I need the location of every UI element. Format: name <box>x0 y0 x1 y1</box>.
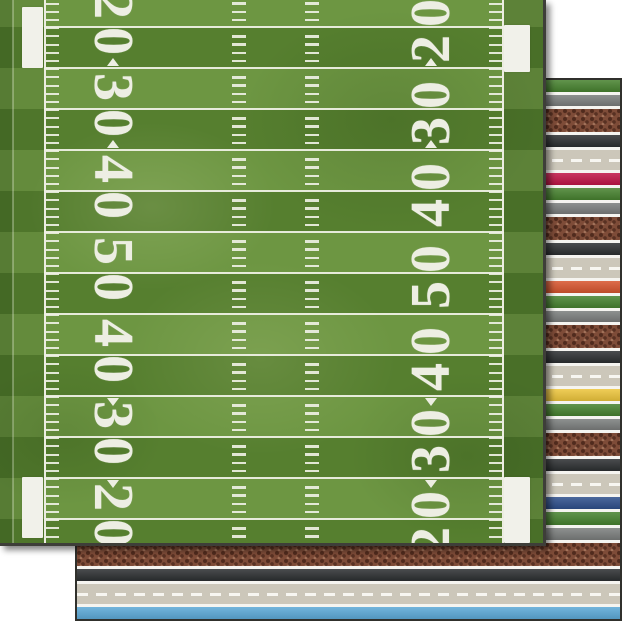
hash-mark <box>305 101 319 104</box>
sideline-tick-right <box>489 27 502 29</box>
sideline-tick-left <box>46 93 59 95</box>
hash-mark <box>232 117 246 120</box>
sideline-tick-left <box>46 339 59 341</box>
goal-marker-top-left <box>22 7 43 68</box>
sideline-tick-left <box>46 404 59 406</box>
sideline-tick-right <box>489 437 502 439</box>
sideline-tick-left <box>46 454 59 456</box>
hash-mark <box>305 2 319 5</box>
sideline-tick-left <box>46 527 59 529</box>
yard-line <box>44 149 504 152</box>
sideline-tick-left <box>46 76 59 78</box>
goal-marker-bottom-right <box>504 477 530 543</box>
hash-mark <box>232 470 246 473</box>
hash-mark <box>232 404 246 407</box>
hash-mark <box>305 257 319 260</box>
hash-mark <box>305 248 319 251</box>
yard-line <box>44 477 504 480</box>
sideline-tick-left <box>46 208 59 210</box>
hash-mark <box>232 339 246 342</box>
hash-mark <box>232 412 246 415</box>
sideline-tick-right <box>489 158 502 160</box>
hash-mark <box>305 281 319 284</box>
sideline-tick-right <box>489 44 502 46</box>
sideline-tick-right <box>489 511 502 513</box>
hash-mark <box>232 306 246 309</box>
sideline-tick-left <box>46 68 59 70</box>
sideline-tick-left <box>46 429 59 431</box>
hash-mark <box>232 462 246 465</box>
sideline-tick-left <box>46 240 59 242</box>
hash-mark <box>305 265 319 268</box>
hash-mark <box>305 183 319 186</box>
sideline-tick-left <box>46 372 59 374</box>
hash-mark <box>232 142 246 145</box>
yard-arrow-up-icon <box>425 140 437 148</box>
hash-mark <box>232 445 246 448</box>
sideline-tick-left <box>46 273 59 275</box>
hash-mark <box>232 429 246 432</box>
sideline-tick-left <box>46 142 59 144</box>
hash-mark <box>232 322 246 325</box>
sideline-tick-right <box>489 199 502 201</box>
yard-line <box>44 231 504 234</box>
sideline-tick-left <box>46 462 59 464</box>
hash-mark <box>232 76 246 79</box>
hash-mark <box>232 35 246 38</box>
hash-mark <box>232 289 246 292</box>
sideline-tick-left <box>46 126 59 128</box>
hash-mark <box>305 117 319 120</box>
sideline-tick-left <box>46 3 59 5</box>
sideline-tick-left <box>46 306 59 308</box>
stripe-brown <box>77 543 620 566</box>
hash-mark <box>232 2 246 5</box>
hash-mark <box>232 134 246 137</box>
hash-mark <box>305 445 319 448</box>
sideline-tick-left <box>46 536 59 538</box>
hash-mark <box>232 503 246 506</box>
hash-mark <box>305 503 319 506</box>
hash-mark <box>305 125 319 128</box>
hash-mark <box>305 207 319 210</box>
hash-mark <box>305 511 319 514</box>
sideline-tick-right <box>489 470 502 472</box>
sideline-tick-left <box>46 290 59 292</box>
sideline-tick-left <box>46 355 59 357</box>
sideline-tick-right <box>489 429 502 431</box>
yard-number-right: 40 <box>403 155 459 227</box>
hash-mark <box>305 175 319 178</box>
hash-mark <box>305 388 319 391</box>
hash-mark <box>305 404 319 407</box>
sideline-tick-left <box>46 347 59 349</box>
sideline-tick-right <box>489 183 502 185</box>
hash-mark <box>232 535 246 538</box>
hash-mark <box>305 166 319 169</box>
sideline-tick-left <box>46 44 59 46</box>
sideline-tick-right <box>489 495 502 497</box>
hash-mark <box>305 289 319 292</box>
hash-mark <box>232 421 246 424</box>
hash-mark <box>232 224 246 227</box>
yard-number-right: 30 <box>403 73 459 145</box>
sideline-tick-left <box>46 101 59 103</box>
sideline-tick-right <box>489 265 502 267</box>
hash-mark <box>305 339 319 342</box>
yard-number-left: 20 <box>85 0 141 63</box>
hash-mark <box>305 535 319 538</box>
hash-mark <box>305 322 319 325</box>
hash-mark <box>232 93 246 96</box>
sideline-tick-right <box>489 134 502 136</box>
sideline-tick-left <box>46 60 59 62</box>
sideline-tick-right <box>489 462 502 464</box>
sideline-tick-right <box>489 355 502 357</box>
hash-mark <box>232 216 246 219</box>
sideline-tick-left <box>46 281 59 283</box>
yard-line <box>44 67 504 70</box>
hash-mark <box>232 11 246 14</box>
hash-mark <box>305 470 319 473</box>
sideline-tick-left <box>46 388 59 390</box>
hash-mark <box>305 330 319 333</box>
sideline-tick-left <box>46 19 59 21</box>
hash-mark <box>305 216 319 219</box>
sideline-tick-left <box>46 265 59 267</box>
sideline-tick-right <box>489 191 502 193</box>
goal-marker-top-right <box>504 25 530 72</box>
yard-arrow-up-icon <box>107 140 119 148</box>
sideline-tick-left <box>46 380 59 382</box>
sideline-tick-left <box>46 421 59 423</box>
sideline-tick-right <box>489 35 502 37</box>
sideline-tick-left <box>46 486 59 488</box>
hash-mark <box>305 306 319 309</box>
sideline-tick-right <box>489 331 502 333</box>
goal-marker-bottom-left <box>22 477 43 538</box>
yard-line <box>44 313 504 316</box>
sideline-tick-left <box>46 413 59 415</box>
hash-mark <box>305 11 319 14</box>
stripe-lightblue <box>77 607 620 620</box>
hash-mark <box>232 281 246 284</box>
sideline-tick-right <box>489 281 502 283</box>
sideline-tick-right <box>489 314 502 316</box>
hash-mark <box>232 166 246 169</box>
hash-mark <box>305 60 319 63</box>
hash-mark <box>305 421 319 424</box>
sideline-tick-right <box>489 527 502 529</box>
stripe-tan <box>77 584 620 604</box>
sideline-tick-right <box>489 519 502 521</box>
hash-mark <box>305 494 319 497</box>
hash-mark <box>232 240 246 243</box>
hash-mark <box>305 363 319 366</box>
sideline-tick-right <box>489 60 502 62</box>
sideline-tick-right <box>489 19 502 21</box>
sideline-tick-left <box>46 216 59 218</box>
sideline-tick-right <box>489 396 502 398</box>
sideline-tick-left <box>46 117 59 119</box>
sideline-tick-right <box>489 208 502 210</box>
sideline-tick-right <box>489 298 502 300</box>
sideline-tick-right <box>489 76 502 78</box>
hash-mark <box>305 453 319 456</box>
sideline-tick-right <box>489 322 502 324</box>
sideline-tick-left <box>46 27 59 29</box>
sideline-tick-right <box>489 421 502 423</box>
hash-mark <box>305 158 319 161</box>
sideline-tick-left <box>46 495 59 497</box>
sideline-tick-right <box>489 126 502 128</box>
sideline-tick-left <box>46 445 59 447</box>
sideline-tick-right <box>489 306 502 308</box>
sideline-tick-right <box>489 68 502 70</box>
hash-mark <box>305 527 319 530</box>
hash-mark <box>232 199 246 202</box>
hash-mark <box>305 134 319 137</box>
yard-number-right: 40 <box>403 319 459 391</box>
hash-mark <box>232 52 246 55</box>
hash-mark <box>305 93 319 96</box>
sideline-tick-left <box>46 396 59 398</box>
hash-mark <box>232 371 246 374</box>
yard-number-left: 50 <box>85 237 141 309</box>
yard-number-left: 30 <box>85 73 141 145</box>
sideline-tick-right <box>489 290 502 292</box>
sideline-tick-right <box>489 93 502 95</box>
sideline-tick-left <box>46 331 59 333</box>
hash-mark <box>232 486 246 489</box>
sideline-tick-left <box>46 109 59 111</box>
sideline-tick-left <box>46 363 59 365</box>
sideline-tick-right <box>489 478 502 480</box>
hash-mark <box>232 265 246 268</box>
sideline-tick-right <box>489 142 502 144</box>
sideline-tick-right <box>489 454 502 456</box>
hash-mark <box>305 298 319 301</box>
sideline-tick-right <box>489 372 502 374</box>
hash-mark <box>305 240 319 243</box>
hash-mark <box>232 175 246 178</box>
hash-mark <box>232 125 246 128</box>
sideline-tick-right <box>489 388 502 390</box>
sideline-tick-right <box>489 240 502 242</box>
hash-mark <box>232 248 246 251</box>
yard-number-right: 20 <box>403 0 459 63</box>
hash-mark <box>232 388 246 391</box>
yard-number-right: 50 <box>403 237 459 309</box>
sideline-tick-right <box>489 224 502 226</box>
sideline-tick-right <box>489 413 502 415</box>
hash-mark <box>305 347 319 350</box>
sideline-tick-right <box>489 536 502 538</box>
hash-mark <box>305 19 319 22</box>
sideline-tick-right <box>489 486 502 488</box>
hash-mark <box>232 84 246 87</box>
hash-mark <box>305 486 319 489</box>
hash-mark <box>232 158 246 161</box>
sideline-tick-left <box>46 52 59 54</box>
hash-mark <box>232 60 246 63</box>
yard-number-left: 30 <box>85 401 141 473</box>
sideline-tick-right <box>489 232 502 234</box>
sideline-tick-left <box>46 298 59 300</box>
hash-mark <box>232 380 246 383</box>
yard-number-left: 40 <box>85 319 141 391</box>
sideline-tick-left <box>46 224 59 226</box>
sideline-tick-left <box>46 150 59 152</box>
yard-number-left: 20 <box>85 483 141 546</box>
sideline-tick-right <box>489 167 502 169</box>
hash-mark <box>305 462 319 465</box>
hash-mark <box>232 511 246 514</box>
sideline-tick-right <box>489 445 502 447</box>
hash-mark <box>305 84 319 87</box>
sideline-tick-right <box>489 216 502 218</box>
hash-mark <box>232 347 246 350</box>
hash-mark <box>305 35 319 38</box>
hash-mark <box>232 363 246 366</box>
hash-mark <box>232 19 246 22</box>
sideline-tick-right <box>489 101 502 103</box>
sideline-tick-right <box>489 109 502 111</box>
yard-number-left: 40 <box>85 155 141 227</box>
yard-number-right: 30 <box>403 401 459 473</box>
sideline-tick-left <box>46 232 59 234</box>
sideline-tick-left <box>46 85 59 87</box>
sideline-tick-left <box>46 35 59 37</box>
scrapbook-paper-product-image: 2020303040405050404030302020 <box>0 0 627 626</box>
sideline-tick-right <box>489 175 502 177</box>
sideline-tick-left <box>46 167 59 169</box>
hash-mark <box>305 412 319 415</box>
sideline-tick-right <box>489 339 502 341</box>
sideline-tick-left <box>46 470 59 472</box>
hash-mark <box>232 183 246 186</box>
sideline-tick-left <box>46 437 59 439</box>
football-field-paper-front-sheet: 2020303040405050404030302020 <box>0 0 546 546</box>
hash-mark <box>305 76 319 79</box>
sideline-tick-right <box>489 117 502 119</box>
sideline-tick-left <box>46 257 59 259</box>
sideline-tick-right <box>489 380 502 382</box>
hash-mark <box>232 207 246 210</box>
hash-mark <box>232 494 246 497</box>
stripe-black <box>77 569 620 581</box>
hash-mark <box>232 43 246 46</box>
hash-mark <box>232 527 246 530</box>
sideline-tick-right <box>489 52 502 54</box>
sideline-tick-right <box>489 150 502 152</box>
hash-mark <box>305 199 319 202</box>
sideline-tick-left <box>46 478 59 480</box>
sideline-tick-left <box>46 314 59 316</box>
sideline-tick-right <box>489 257 502 259</box>
hash-mark <box>232 101 246 104</box>
sideline-tick-left <box>46 322 59 324</box>
sideline-tick-right <box>489 503 502 505</box>
sideline-tick-left <box>46 191 59 193</box>
yard-arrow-up-icon <box>107 58 119 66</box>
sideline-tick-right <box>489 3 502 5</box>
sideline-tick-right <box>489 404 502 406</box>
sideline-tick-left <box>46 183 59 185</box>
hash-mark <box>305 380 319 383</box>
sideline-tick-left <box>46 158 59 160</box>
sideline-tick-left <box>46 503 59 505</box>
sideline-tick-left <box>46 175 59 177</box>
yard-number-right: 20 <box>403 483 459 546</box>
hash-mark <box>232 298 246 301</box>
hash-mark <box>232 257 246 260</box>
sideline-tick-right <box>489 249 502 251</box>
dashed-center-line <box>77 593 620 596</box>
hash-mark <box>305 142 319 145</box>
sideline-tick-right <box>489 85 502 87</box>
sideline-tick-left <box>46 511 59 513</box>
yard-line <box>44 395 504 398</box>
sideline-tick-left <box>46 519 59 521</box>
hash-mark <box>232 330 246 333</box>
yard-arrow-up-icon <box>425 58 437 66</box>
sideline-tick-left <box>46 134 59 136</box>
sideline-tick-right <box>489 363 502 365</box>
hash-mark <box>232 453 246 456</box>
sideline-tick-left <box>46 249 59 251</box>
hash-mark <box>305 52 319 55</box>
hash-mark <box>305 371 319 374</box>
sideline-tick-right <box>489 273 502 275</box>
hash-mark <box>305 43 319 46</box>
sideline-tick-right <box>489 347 502 349</box>
hash-mark <box>305 429 319 432</box>
sideline-tick-left <box>46 11 59 13</box>
sideline-tick-right <box>489 11 502 13</box>
hash-mark <box>305 224 319 227</box>
sideline-tick-left <box>46 199 59 201</box>
